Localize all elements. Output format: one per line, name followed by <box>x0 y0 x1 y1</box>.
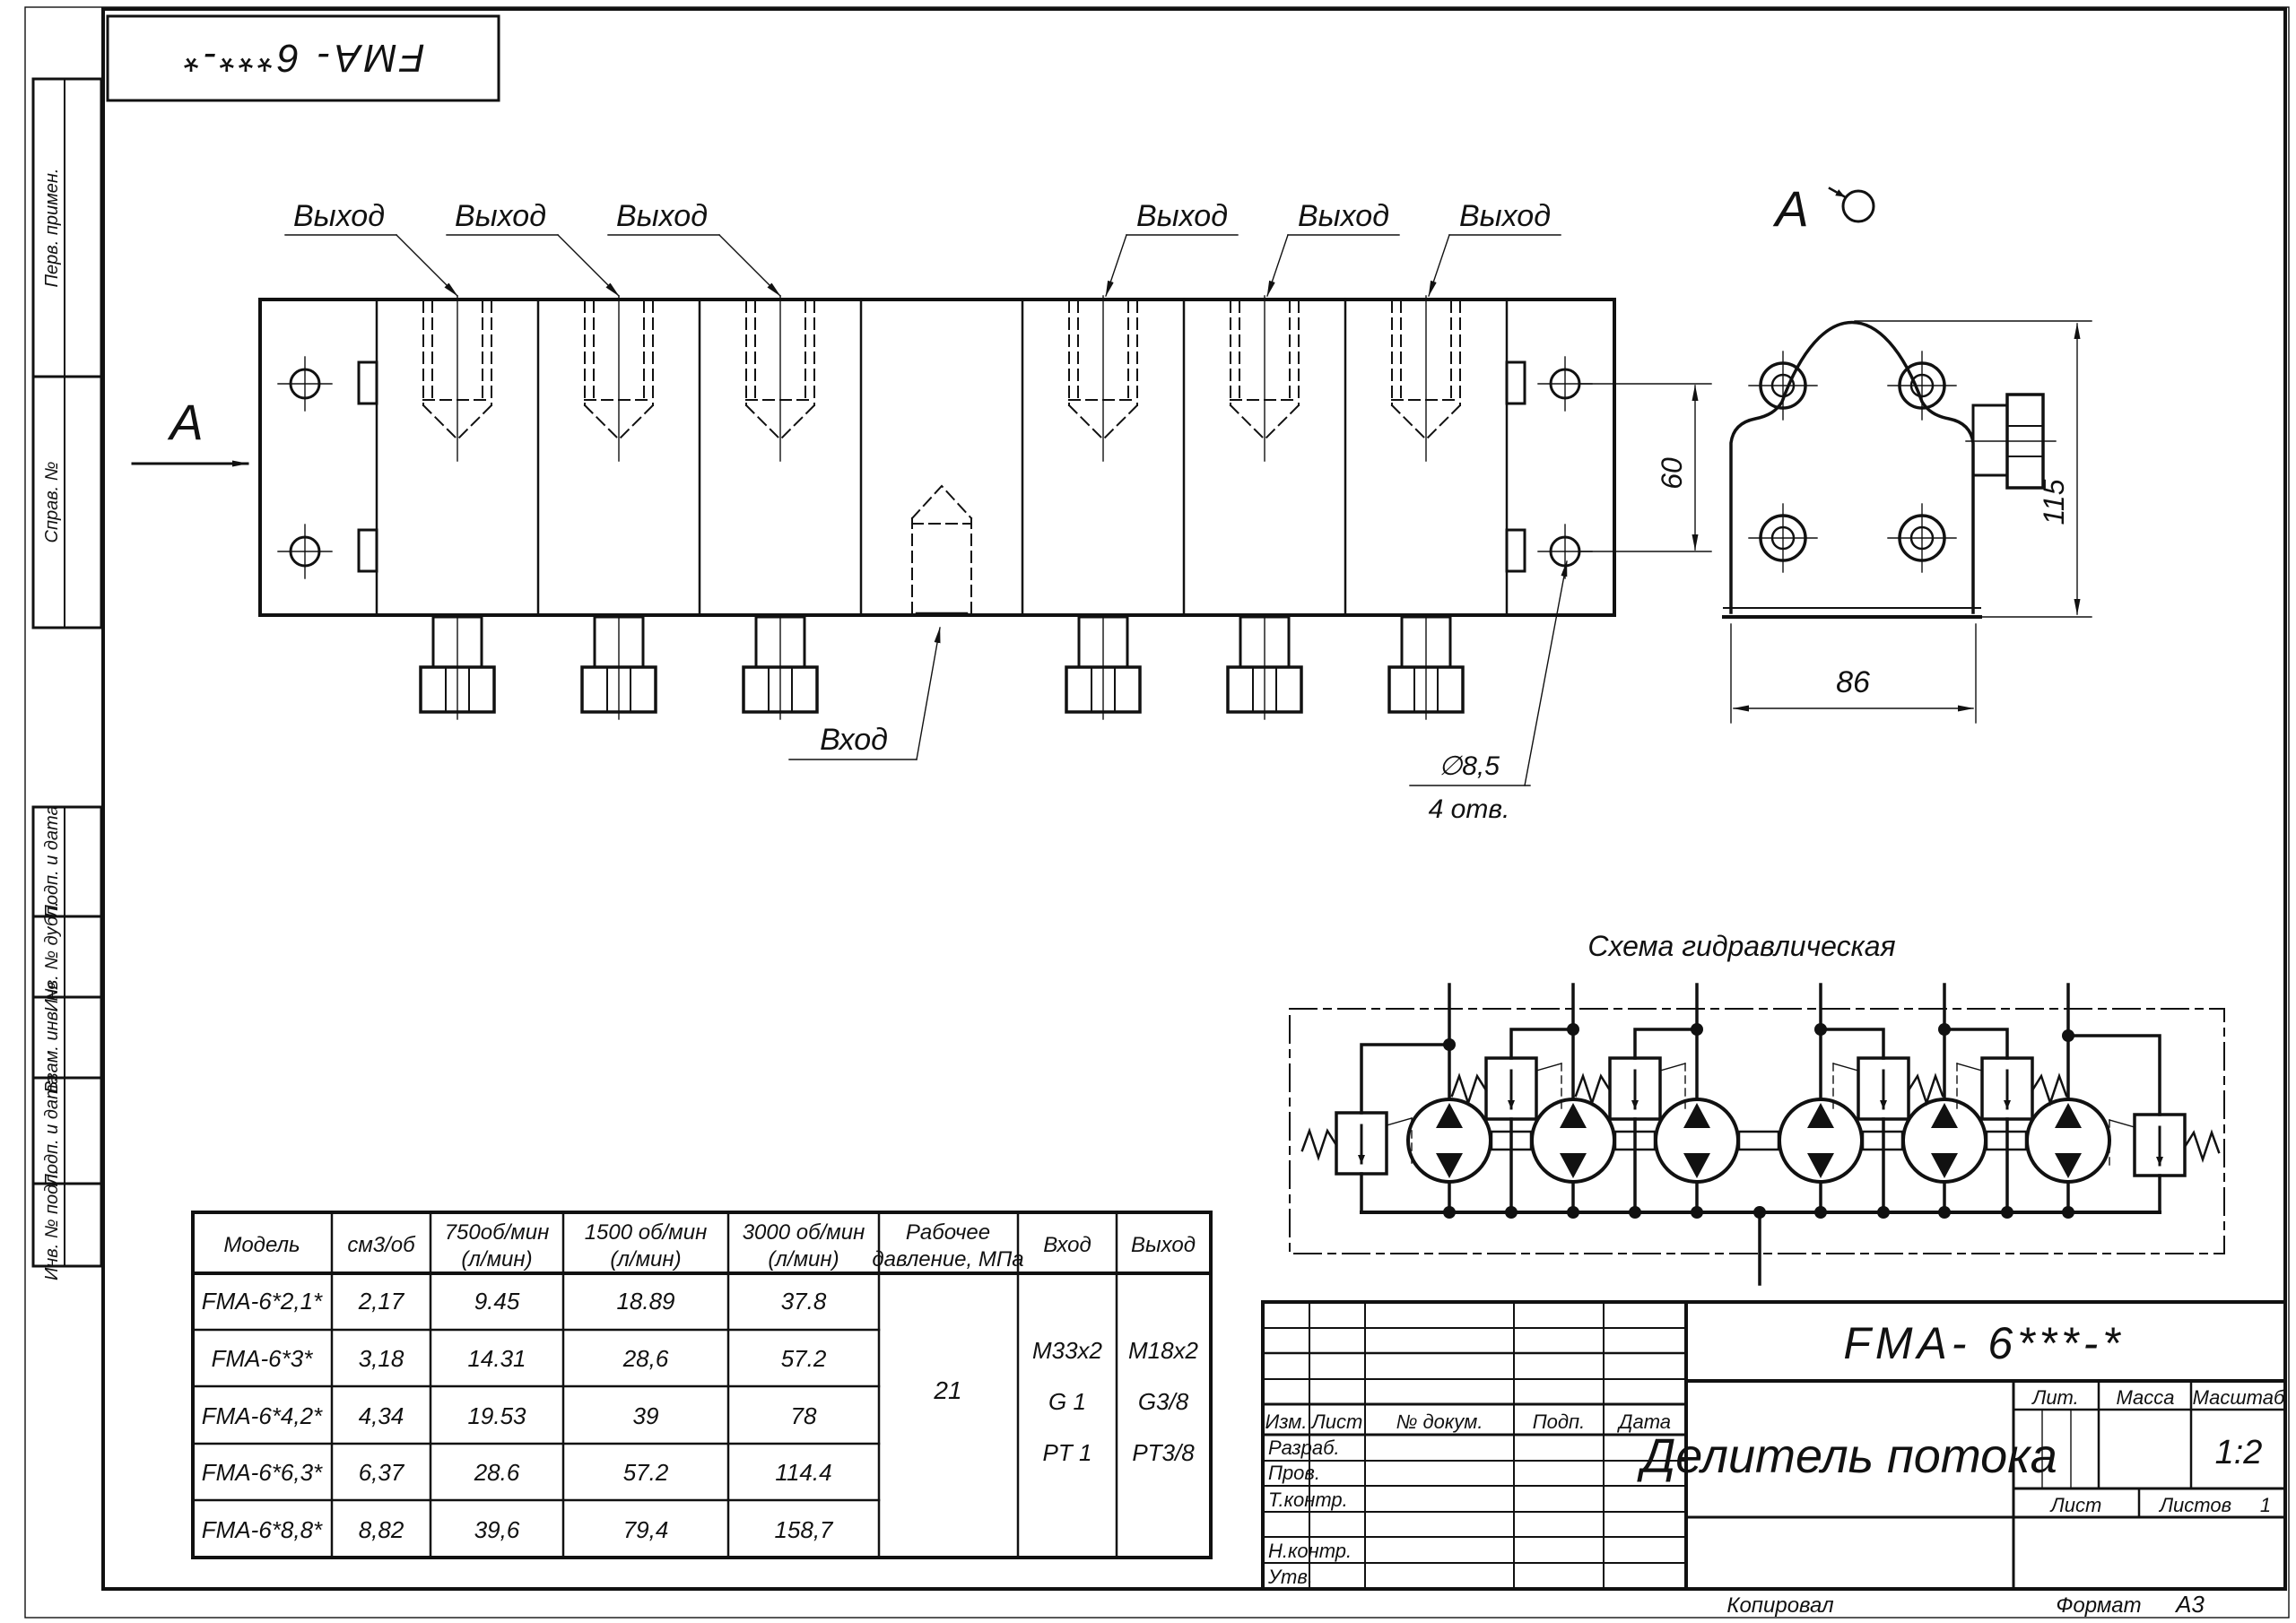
format-value: А3 <box>2174 1591 2205 1618</box>
output-label: Выход <box>455 199 546 233</box>
col-inlet: Вход <box>1043 1233 1091 1257</box>
col-podp: Подп. <box>1533 1410 1586 1433</box>
sheets-value: 1 <box>2260 1494 2271 1516</box>
view-a-letter: А <box>167 394 203 450</box>
lit-label: Лит. <box>2031 1386 2079 1409</box>
cell-model: FMA-6*3* <box>212 1345 314 1372</box>
row-razrab: Разраб. <box>1268 1436 1340 1459</box>
cell-q1500: 18.89 <box>616 1288 674 1315</box>
side-holes <box>1749 352 1956 572</box>
cell-model: FMA-6*4,2* <box>202 1402 323 1429</box>
end-cap-holes <box>278 357 1592 578</box>
cell-q1500: 57.2 <box>623 1459 669 1486</box>
shaft-couplings <box>1492 1132 2026 1150</box>
dim-60: 60 <box>1581 384 1711 551</box>
spec-table: Модель см3/об 750об/мин (л/мин) 1500 об/… <box>193 1212 1211 1558</box>
cell-q1500: 28,6 <box>622 1345 669 1372</box>
footer: Копировал Формат А3 <box>1726 1591 2205 1618</box>
row-nkontr: Н.контр. <box>1268 1540 1352 1562</box>
cell-q750: 9.45 <box>474 1288 520 1315</box>
cell-q3000: 78 <box>791 1402 817 1429</box>
title-block: Изм. Лист № докум. Подп. Дата Разраб. Пр… <box>1263 1302 2286 1589</box>
hydraulic-schematic: Схема гидравлическая <box>1290 930 2224 1284</box>
col-cm3: см3/об <box>347 1233 416 1257</box>
side-fitting <box>1966 395 2056 488</box>
masshtab-label: Масштаб <box>2193 1386 2286 1409</box>
hole-callout: ∅8,5 4 отв. <box>1410 561 1567 824</box>
flow-divider-motors <box>1408 1099 2109 1182</box>
outlet-line: G3/8 <box>1138 1388 1189 1415</box>
cell-q750: 28.6 <box>474 1459 520 1486</box>
row-prov: Пров. <box>1268 1462 1320 1484</box>
output-label: Выход <box>1459 199 1551 233</box>
cell-cm3: 3,18 <box>359 1345 404 1372</box>
margin-stamps: Перв. примен. Справ. № Подп. и дата Инв.… <box>33 79 101 1280</box>
inlet-line: G 1 <box>1048 1388 1086 1415</box>
col-list: Лист <box>1310 1410 1363 1433</box>
col-pressure-2: давление, МПа <box>872 1247 1023 1271</box>
input-label-group: Вход <box>789 628 940 759</box>
cell-q750: 39,6 <box>474 1516 520 1543</box>
cell-cm3: 2,17 <box>358 1288 405 1315</box>
side-view-letter: А <box>1772 180 1808 237</box>
inlet-cell: M33x2 G 1 PT 1 <box>1032 1337 1103 1466</box>
cell-cm3: 8,82 <box>359 1516 404 1543</box>
col-1500-1: 1500 об/мин <box>585 1220 708 1245</box>
col-750-1: 750об/мин <box>445 1220 550 1245</box>
dim-60-text: 60 <box>1656 457 1688 490</box>
margin-label-sprav: Справ. № <box>42 462 62 543</box>
input-port <box>912 486 971 613</box>
scale-value: 1:2 <box>2215 1434 2263 1471</box>
row-utv: Утв. <box>1267 1566 1313 1588</box>
margin-label-invpodl: Инв. № подл. <box>42 1169 62 1280</box>
row-tkontr: Т.контр. <box>1268 1488 1348 1511</box>
cell-q750: 19.53 <box>467 1402 526 1429</box>
top-designation-text: FMA- 6***-* <box>181 36 424 80</box>
doc-name: Делитель потока <box>1637 1429 2057 1483</box>
hole-dia-text: ∅8,5 <box>1439 751 1500 781</box>
drawing-sheet: Перв. примен. Справ. № Подп. и дата Инв.… <box>0 0 2296 1623</box>
cell-cm3: 4,34 <box>359 1402 404 1429</box>
cell-model: FMA-6*6,3* <box>202 1459 323 1486</box>
end-cap-tabs <box>359 362 1525 571</box>
section-dividers <box>377 299 1507 615</box>
sheet-label: Лист <box>2049 1494 2102 1516</box>
sheet-frame <box>25 7 2289 1618</box>
input-label: Вход <box>820 723 888 757</box>
margin-label-podp1: Подп. и дата <box>42 805 62 917</box>
inlet-line: M33x2 <box>1032 1337 1103 1364</box>
cell-q3000: 158,7 <box>774 1516 834 1543</box>
col-3000-2: (л/мин) <box>768 1247 839 1271</box>
col-pressure-1: Рабочее <box>906 1220 990 1245</box>
hole-count-text: 4 отв. <box>1429 794 1510 824</box>
col-ndok: № докум. <box>1396 1410 1483 1433</box>
cell-q1500: 39 <box>633 1402 659 1429</box>
col-outlet: Выход <box>1131 1233 1196 1257</box>
cell-pressure: 21 <box>933 1376 961 1404</box>
cell-q3000: 114.4 <box>775 1459 831 1486</box>
view-a-arrow: А <box>133 394 248 464</box>
outlet-line: PT3/8 <box>1132 1439 1195 1466</box>
output-label: Выход <box>1298 199 1389 233</box>
col-3000-1: 3000 об/мин <box>743 1220 865 1245</box>
doc-designation: FMA- 6***-* <box>1843 1318 2124 1368</box>
cell-q750: 14.31 <box>467 1345 526 1372</box>
outlet-cell: M18x2 G3/8 PT3/8 <box>1128 1337 1199 1466</box>
change-table-header: Изм. Лист № докум. Подп. Дата <box>1265 1410 1671 1433</box>
outlet-line: M18x2 <box>1128 1337 1199 1364</box>
col-izm: Изм. <box>1265 1410 1308 1433</box>
view-a-marker: А <box>1772 180 1874 237</box>
cell-model: FMA-6*2,1* <box>202 1288 323 1315</box>
cell-cm3: 6,37 <box>359 1459 405 1486</box>
top-designation-box: FMA- 6***-* <box>108 16 499 100</box>
col-750-2: (л/мин) <box>461 1247 532 1271</box>
col-1500-2: (л/мин) <box>610 1247 681 1271</box>
front-view: Выход Выход Выход Выход Выход Выход Вход <box>133 199 1711 824</box>
side-view: А 115 86 <box>1724 180 2092 723</box>
output-label: Выход <box>293 199 385 233</box>
cell-q1500: 79,4 <box>623 1516 669 1543</box>
table-rows: FMA-6*2,1* 2,17 9.45 18.89 37.8 FMA-6*3*… <box>202 1288 834 1543</box>
margin-label-perv: Перв. примен. <box>42 169 62 288</box>
cell-q3000: 57.2 <box>781 1345 827 1372</box>
output-label: Выход <box>616 199 708 233</box>
valve-connections <box>1361 1029 2160 1212</box>
sheets-label: Листов <box>2158 1494 2231 1516</box>
kopiroval-label: Копировал <box>1726 1593 1834 1618</box>
cell-model: FMA-6*8,8* <box>202 1516 323 1543</box>
format-label: Формат <box>2056 1593 2141 1618</box>
cell-q3000: 37.8 <box>781 1288 827 1315</box>
output-labels: Выход Выход Выход Выход Выход Выход <box>285 199 1561 296</box>
inlet-line: PT 1 <box>1043 1439 1092 1466</box>
dim-86: 86 <box>1731 624 1976 723</box>
output-lines <box>1449 985 2068 1099</box>
output-ports <box>423 296 1460 461</box>
col-model: Модель <box>223 1233 300 1257</box>
bottom-bolts <box>421 617 1463 719</box>
bottom-bus <box>1361 1182 2160 1284</box>
dim-86-text: 86 <box>1836 665 1870 699</box>
output-label: Выход <box>1136 199 1228 233</box>
dim-115-text: 115 <box>2038 479 2070 525</box>
table-header: Модель см3/об 750об/мин (л/мин) 1500 об/… <box>223 1220 1196 1271</box>
schematic-title: Схема гидравлическая <box>1587 930 1895 962</box>
massa-label: Масса <box>2116 1386 2174 1409</box>
